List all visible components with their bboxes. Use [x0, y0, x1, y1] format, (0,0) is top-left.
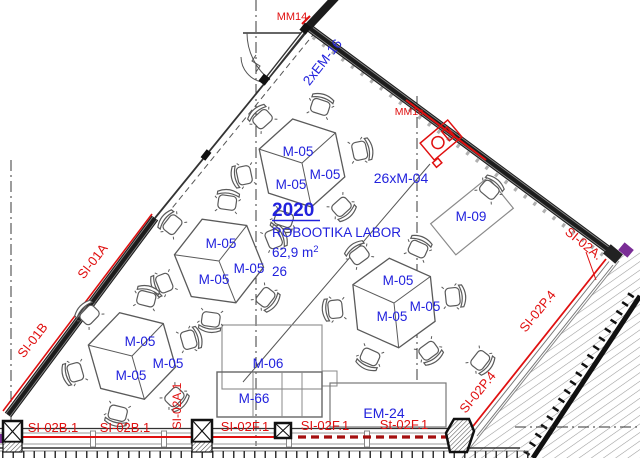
table-label: M-05: [125, 334, 156, 349]
room-number: 2020: [272, 200, 314, 221]
floor-plan-canvas: M-05 M-05 M-05 M-05 M-05 M-05 M-05 M-05 …: [0, 0, 640, 458]
table-label: M-05: [116, 368, 147, 383]
wall-label-si02f1-a: SI-02F.1: [221, 419, 269, 434]
table-label: M-05: [199, 272, 230, 287]
room-area-sup: 2: [313, 244, 318, 255]
cabinet-m66: [217, 372, 322, 417]
chair-count-label: 26xM-04: [374, 170, 429, 186]
table-label: M-05: [283, 144, 314, 159]
column-far-left: [3, 421, 22, 452]
table-label: M-05: [383, 273, 414, 288]
window-mullion: [162, 431, 167, 447]
table-label: M-05: [153, 356, 184, 371]
table-label: M-05: [206, 236, 237, 251]
wall-label-si02a1: SI-02A.1: [170, 382, 184, 429]
window-mullion: [91, 431, 96, 447]
column-mid-left: [192, 420, 212, 452]
wall-stub-top: [307, 0, 336, 28]
wall-label-si02b1-b: SI-02B.1: [100, 420, 151, 435]
table-group-b: [147, 188, 290, 334]
desk-label: M-09: [456, 209, 487, 224]
room-area: 62,9 m2: [272, 244, 319, 260]
desk-chair: [473, 171, 508, 205]
door-marker-label: MM14: [277, 11, 308, 23]
room-area-main: 62,9 m: [272, 245, 313, 260]
cabinet-top-label: M-06: [253, 356, 284, 371]
table-label: M-05: [410, 299, 441, 314]
table-group-d: [321, 232, 467, 374]
floor-plan-svg: M-05 M-05 M-05 M-05 M-05 M-05 M-05 M-05 …: [0, 0, 640, 458]
window-mullion: [365, 431, 370, 447]
column-pentagon: [446, 419, 474, 452]
wall-label-si02f1-c: St-02F.1: [380, 417, 428, 432]
wall-label-si02b1-a: SI-02B.1: [28, 420, 79, 435]
column-small: [275, 423, 291, 438]
table-label: M-05: [377, 309, 408, 324]
door-unit-label: 2xEM-16: [300, 36, 345, 88]
table-label: M-05: [276, 177, 307, 192]
room-name: ROBOOTIKA LABOR: [272, 225, 401, 240]
sensor-marker-label: MM1c: [395, 106, 424, 118]
room-capacity: 26: [272, 264, 287, 279]
wall-label-si02f1-b: SI-02F.1: [301, 418, 349, 433]
table-label: M-05: [234, 261, 265, 276]
lone-chair: [464, 344, 498, 379]
cabinet-bottom-label: M-66: [239, 391, 270, 406]
table-label: M-05: [310, 167, 341, 182]
